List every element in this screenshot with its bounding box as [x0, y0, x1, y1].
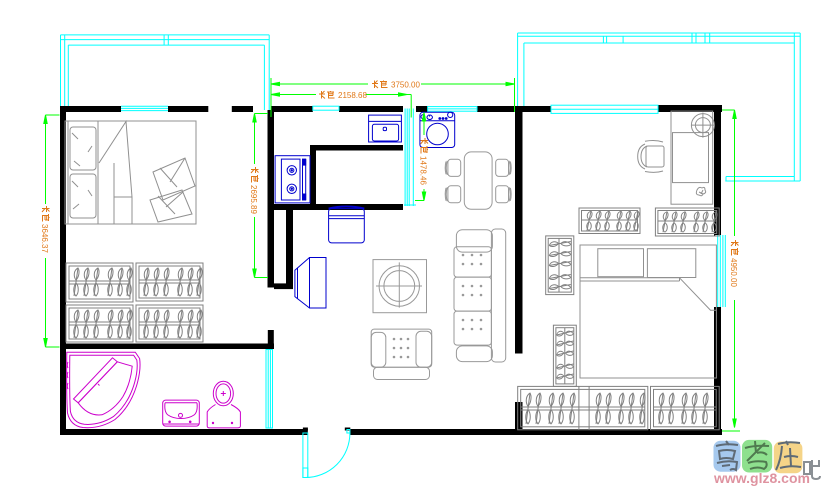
svg-text:3750.00: 3750.00 — [391, 81, 420, 90]
svg-text:2695.89: 2695.89 — [249, 185, 258, 214]
svg-text:1478.46: 1478.46 — [419, 156, 428, 185]
svg-text:3646.37: 3646.37 — [40, 224, 49, 253]
svg-text:4950.00: 4950.00 — [729, 258, 738, 287]
svg-text:2158.68: 2158.68 — [338, 91, 367, 100]
svg-text:www.glz8.com: www.glz8.com — [713, 470, 810, 486]
